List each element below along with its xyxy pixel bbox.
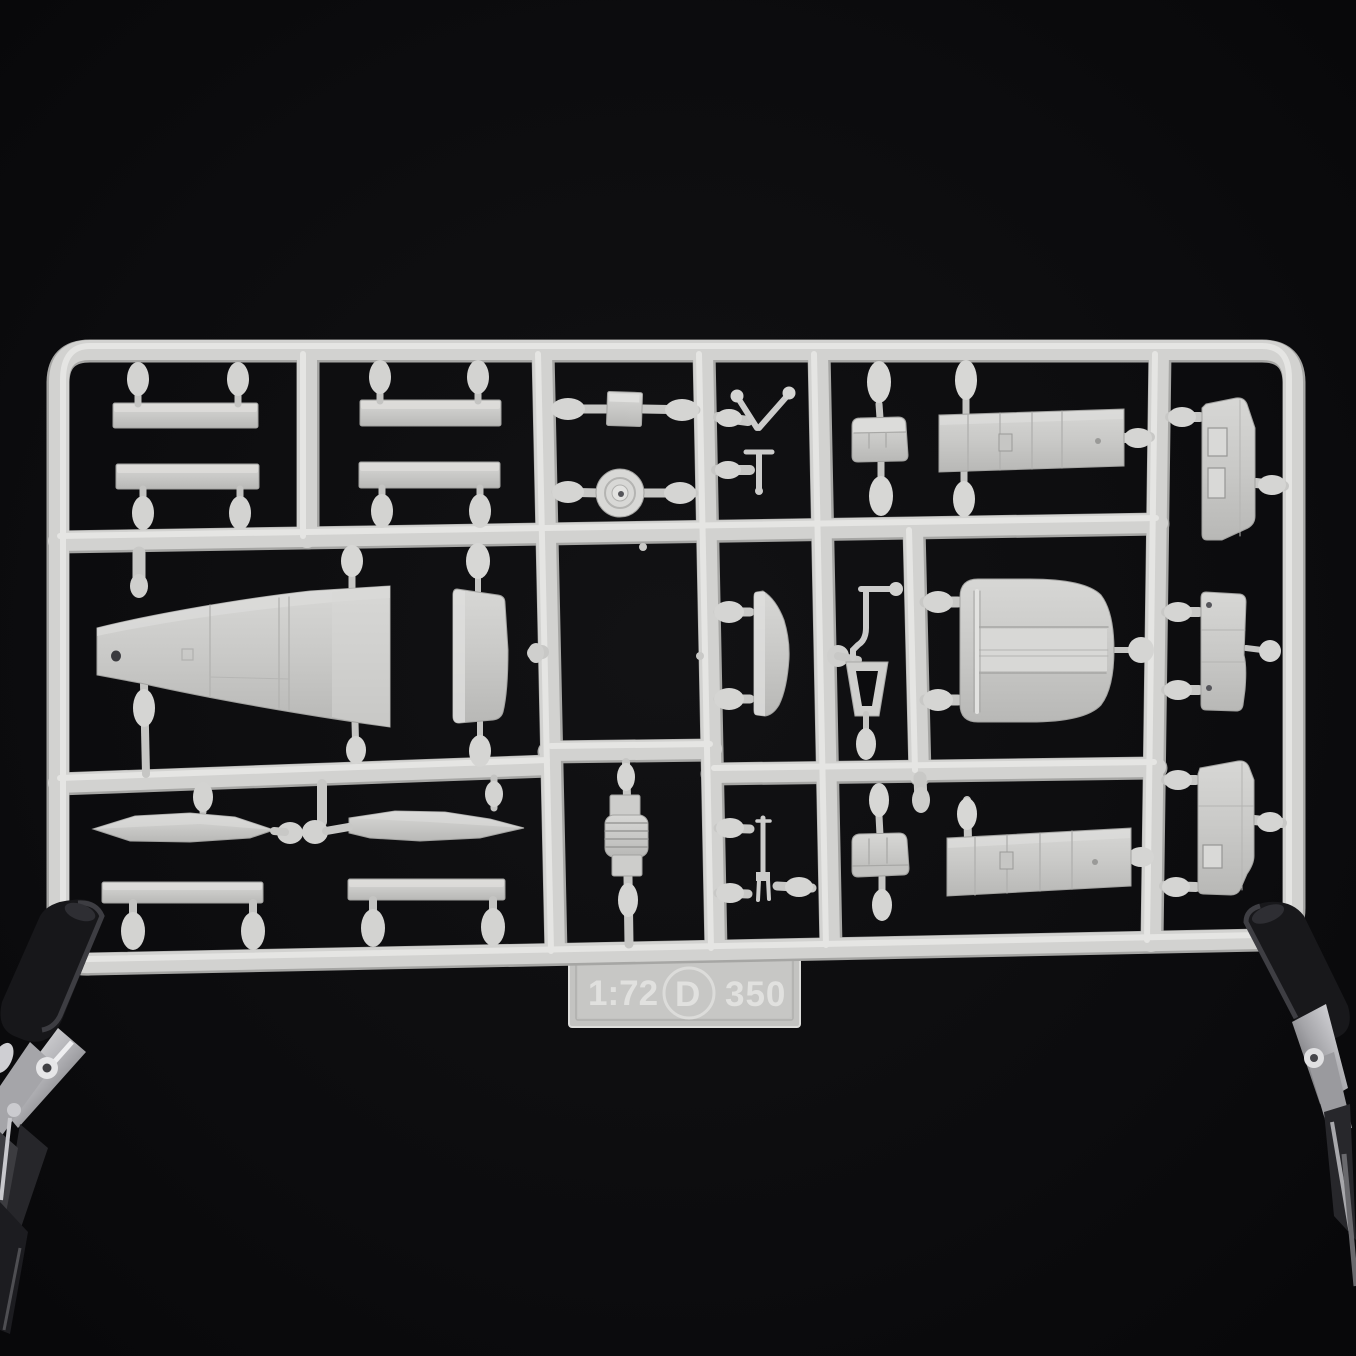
svg-text:D: D: [675, 975, 700, 1014]
svg-text:1:72: 1:72: [588, 974, 658, 1013]
svg-text:350: 350: [725, 975, 786, 1014]
